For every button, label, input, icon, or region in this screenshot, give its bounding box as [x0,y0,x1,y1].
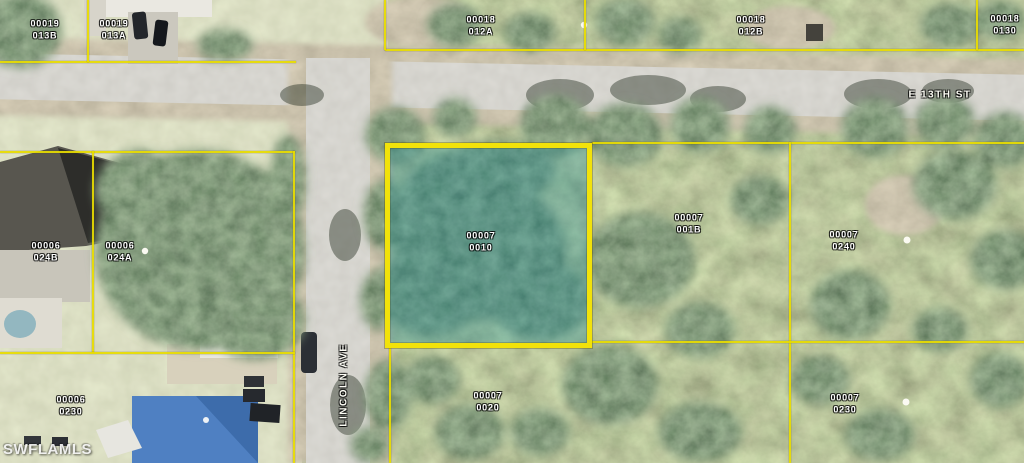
parcel-boundary-line [293,151,295,463]
parcel-label: 00006024A [105,240,134,263]
street-label-e-13th-st: E 13TH ST [909,90,972,101]
parcel-boundary-line [92,151,94,353]
parcel-label: 00018012A [466,14,495,37]
shed [806,24,823,41]
parcel-label: 000070230 [830,392,859,415]
parcel-boundary-line [592,142,1024,144]
vehicle [244,376,264,387]
mls-watermark: SWFLAMLS [3,441,92,458]
parcel-boundary-line [87,0,89,62]
parcel-boundary-line [385,49,1024,51]
parcel-boundary-line [0,151,295,153]
parcel-label: 000180130 [990,13,1019,36]
parcel-label: 000070240 [829,229,858,252]
pool [4,310,36,338]
parcel-boundary-line [592,341,1024,343]
parcel-boundary-line [789,142,791,463]
parcel-boundary-line [0,352,295,354]
parcel-boundary-line [384,0,386,50]
parcel-boundary-line [976,0,978,50]
parcel-label: 00018012B [736,14,765,37]
vehicle [243,389,265,402]
street-label-lincoln-ave: LINCOLN AVE [339,343,350,426]
parcel-label: 00019013B [30,18,59,41]
roof-vent [203,417,209,423]
parcel-boundary-line [584,0,586,50]
parcel-label: 00019013A [99,18,128,41]
parcel-label: 00007001B [674,212,703,235]
subject-parcel-label: 000070010 [466,230,495,253]
parcel-label: 00006024B [31,240,60,263]
parcel-boundary-line [389,348,391,463]
parcel-label: 000060230 [56,394,85,417]
parked-car [301,332,317,373]
parcel-label: 000070020 [473,390,502,413]
vehicle [249,403,280,423]
aerial-map[interactable]: 00019013B 00019013A 00018012A 00018012B … [0,0,1024,463]
parcel-boundary-line [0,61,296,63]
car [132,11,149,39]
